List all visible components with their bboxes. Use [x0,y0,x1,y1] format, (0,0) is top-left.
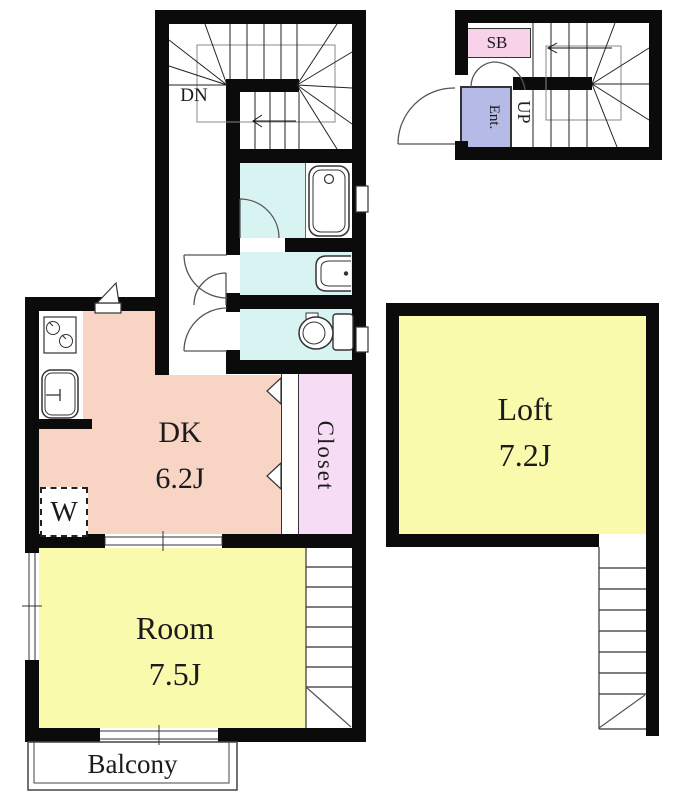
wall-segment [386,534,599,547]
toilet-door [184,308,227,351]
wall-segment [226,360,366,374]
toilet-room-fill [240,309,352,360]
wall-segment [455,10,468,75]
dk-name: DK [100,410,260,456]
closet-door-strip [281,374,299,534]
wall-segment [226,79,299,92]
bathtub-zone [305,163,353,238]
loft-name: Loft [440,386,610,432]
dk-door [194,273,226,305]
shoe-box-label: SB [487,33,508,53]
entrance-label: Ent. [479,85,501,149]
wall-segment [226,295,366,309]
balcony-window-gap [100,728,218,742]
bathroom-fill [240,163,305,238]
wall-segment [25,297,39,742]
wall-segment [155,10,366,24]
room-name: Room [90,605,260,651]
wall-segment [226,350,240,374]
wall-segment [226,293,240,312]
stairs-down-label: DN [168,86,220,105]
wall-segment [285,238,366,252]
sliding-door-gap [105,534,222,548]
dk-label: DK 6.2J [100,410,260,502]
wall-segment [455,141,468,160]
dk-area: 6.2J [100,456,260,502]
wall-segment [455,10,662,23]
wall-segment [155,10,169,375]
shoe-box: SB [463,28,531,58]
stairs-up-label: UP [511,84,533,140]
loft-label: Loft 7.2J [440,386,610,478]
wall-segment [218,728,366,742]
room-area: 7.5J [90,651,260,697]
side-window-gap [25,553,39,660]
closet-label: Closet [313,399,337,513]
wall-segment [25,728,100,742]
kitchen-counter [39,311,83,419]
wall-segment [39,419,92,429]
loft-ladder [599,547,646,729]
wall-segment [25,297,155,311]
floor-plan: SB W [0,0,687,800]
balcony-label: Balcony [50,751,215,778]
wall-segment [386,303,659,316]
washroom-fill [240,252,352,295]
washing-machine-box: W [40,487,88,537]
room-ladder [306,548,352,728]
wall-segment [226,85,240,163]
wall-segment [352,10,366,742]
wall-segment [386,303,399,547]
washroom-door [184,255,227,298]
washing-machine-label: W [50,496,77,529]
wall-segment [226,163,240,255]
wall-segment [222,534,366,548]
room-label: Room 7.5J [90,605,260,697]
wall-segment [226,149,366,163]
wall-segment [646,303,659,736]
wall-segment [649,10,662,160]
loft-area: 7.2J [440,432,610,478]
